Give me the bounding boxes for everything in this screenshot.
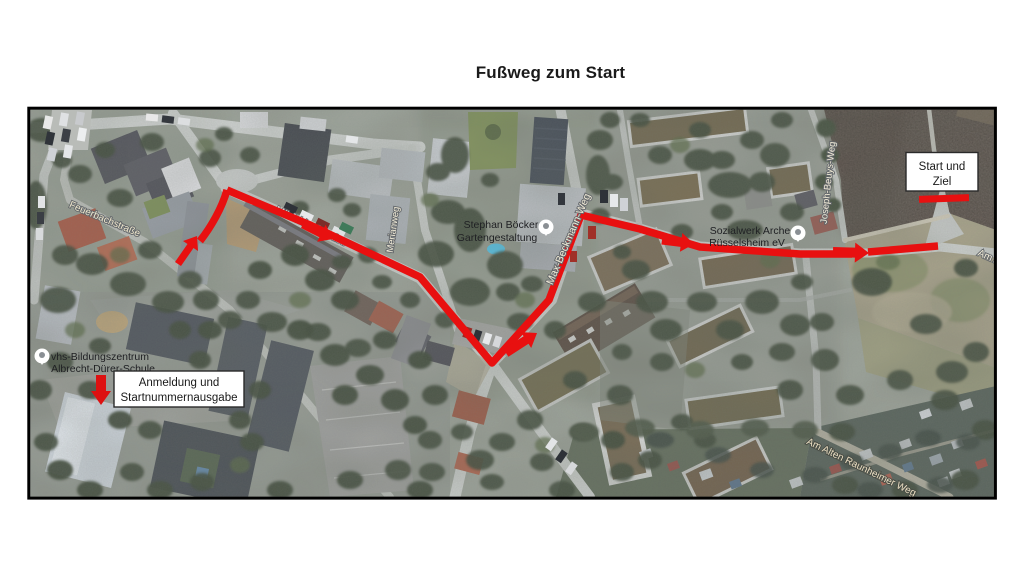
svg-text:Stephan Böcker: Stephan Böcker: [464, 219, 539, 231]
svg-text:Rüsselsheim eV: Rüsselsheim eV: [709, 237, 785, 249]
svg-text:vhs-Bildungszentrum: vhs-Bildungszentrum: [51, 351, 149, 363]
svg-text:Startnummernausgabe: Startnummernausgabe: [121, 392, 238, 404]
svg-text:Anmeldung und: Anmeldung und: [139, 377, 220, 389]
svg-text:Ziel: Ziel: [933, 176, 952, 188]
svg-text:Sozialwerk Arche: Sozialwerk Arche: [710, 225, 791, 237]
svg-text:Gartengestaltung: Gartengestaltung: [457, 232, 538, 244]
svg-text:Start und: Start und: [919, 161, 966, 173]
